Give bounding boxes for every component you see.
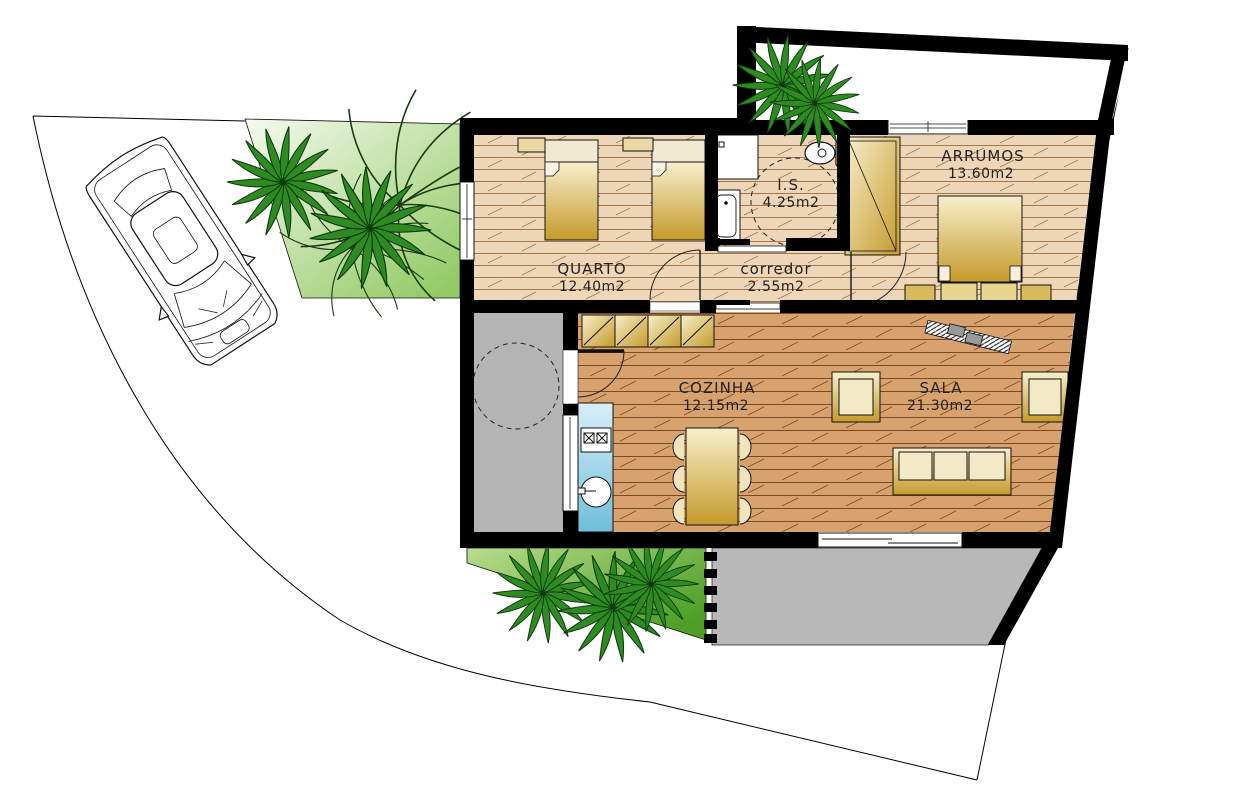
property-line-top — [33, 116, 245, 121]
label-arrumos-area: 13.60m2 — [948, 166, 1014, 182]
wall-top-right-segment — [968, 118, 1114, 135]
nightstand — [623, 138, 653, 151]
label-corredor-name: corredor — [740, 260, 811, 278]
wall-patio-kitchen-upper — [563, 300, 578, 350]
dining-table — [686, 428, 738, 525]
nightstand — [905, 285, 935, 302]
wall-patio-kitchen-lower — [563, 511, 578, 532]
wall-patio-kitchen-mid — [563, 404, 578, 415]
label-quarto-name: QUARTO — [557, 260, 626, 278]
label-corredor-area: 2.55m2 — [748, 279, 805, 295]
floor-plan-canvas: QUARTO 12.40m2 I.S. 4.25m2 corredor 2.55… — [0, 0, 1257, 793]
stove — [581, 428, 611, 452]
wall-left-upper — [460, 118, 474, 182]
nightstand — [518, 138, 545, 152]
label-sala-area: 21.30m2 — [907, 398, 973, 414]
label-cozinha-area: 12.15m2 — [683, 398, 749, 414]
wall-corridor-left — [460, 300, 650, 313]
label-sala-name: SALA — [919, 379, 962, 397]
label-cozinha-name: COZINHA — [679, 379, 756, 397]
label-arrumos-name: ARRUMOS — [941, 147, 1024, 165]
wall-bottom-right-segment — [962, 532, 1062, 548]
wardrobe — [845, 137, 900, 255]
wall-corridor-mid — [700, 300, 716, 313]
wall-quarto-is — [705, 135, 718, 243]
sliding-door-sala-terrace — [818, 533, 962, 547]
nightstand — [1021, 285, 1051, 302]
wall-bottom-left-segment — [460, 532, 818, 548]
terrace — [712, 548, 1042, 645]
door-gap-quarto — [650, 302, 700, 311]
bed-single-1 — [545, 140, 598, 240]
sofa — [893, 448, 1011, 495]
wall-is-arrumos — [837, 135, 850, 250]
door-gap-patio-kitchen — [563, 350, 578, 404]
wall-is-bottom-right — [786, 238, 850, 251]
window-left — [460, 182, 474, 260]
window-patio-kitchen — [563, 415, 578, 511]
wall-corridor-right — [780, 300, 1077, 313]
armchair — [1022, 372, 1068, 422]
label-quarto-area: 12.40m2 — [559, 279, 625, 295]
window-top — [888, 119, 968, 134]
car — [73, 125, 291, 375]
bed-single-2 — [652, 140, 705, 240]
label-is-name: I.S. — [777, 176, 804, 194]
armchair — [832, 372, 880, 422]
kitchen-counter — [578, 403, 613, 532]
interior-patio — [474, 312, 578, 532]
label-is-area: 4.25m2 — [763, 195, 820, 211]
floor-plan-svg: QUARTO 12.40m2 I.S. 4.25m2 corredor 2.55… — [0, 0, 1257, 793]
upper-cabinets — [582, 315, 714, 347]
